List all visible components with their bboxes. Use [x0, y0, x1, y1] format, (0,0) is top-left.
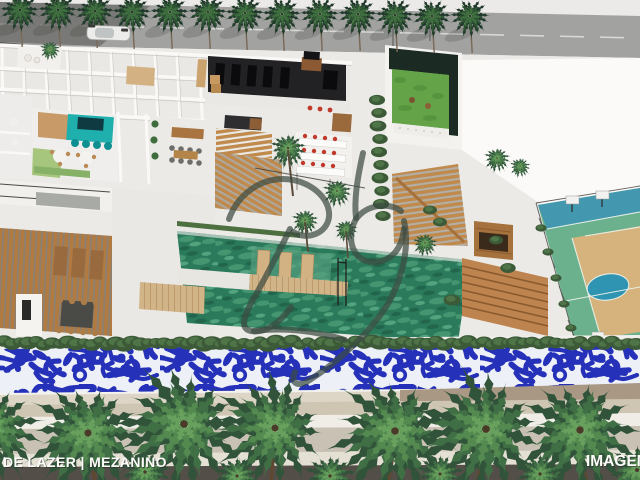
svg-text:IMAGEM I: IMAGEM I [586, 453, 640, 470]
svg-text:DE LAZER | MEZANINO: DE LAZER | MEZANINO [3, 454, 167, 470]
